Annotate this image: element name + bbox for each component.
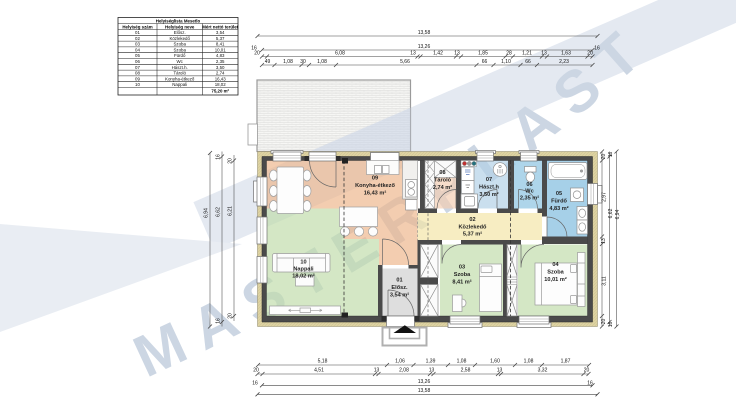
svg-text:2,58: 2,58 (461, 368, 471, 374)
svg-text:05: 05 (556, 191, 562, 197)
svg-text:16: 16 (594, 46, 600, 52)
svg-text:03: 03 (135, 42, 140, 47)
svg-text:10: 10 (135, 82, 140, 87)
svg-text:13: 13 (374, 368, 380, 374)
svg-text:1,87: 1,87 (561, 359, 571, 365)
svg-text:16: 16 (252, 381, 258, 387)
svg-text:13: 13 (601, 238, 607, 244)
svg-text:4,83 m²: 4,83 m² (549, 205, 568, 212)
svg-text:13: 13 (454, 51, 460, 57)
svg-text:2,74: 2,74 (216, 71, 225, 76)
svg-text:Szoba: Szoba (173, 42, 186, 47)
svg-text:16: 16 (608, 152, 614, 158)
svg-text:2,74 m²: 2,74 m² (433, 184, 452, 191)
svg-text:Szoba: Szoba (547, 270, 564, 276)
svg-text:13: 13 (410, 51, 416, 57)
svg-text:1,08: 1,08 (524, 359, 534, 365)
svg-text:Tároló: Tároló (173, 71, 186, 76)
svg-text:09: 09 (372, 176, 378, 182)
svg-text:2,23: 2,23 (559, 59, 569, 65)
svg-text:49: 49 (265, 59, 271, 65)
svg-text:13: 13 (541, 51, 547, 57)
svg-text:10,01 m²: 10,01 m² (544, 276, 567, 283)
svg-text:20: 20 (228, 313, 234, 319)
svg-text:1,85: 1,85 (478, 51, 488, 57)
svg-text:1,39: 1,39 (426, 359, 436, 365)
svg-text:Nappali: Nappali (172, 82, 187, 87)
svg-text:Helyiség neve: Helyiség neve (165, 24, 195, 29)
svg-text:5,37 m²: 5,37 m² (463, 231, 482, 238)
svg-text:20: 20 (254, 51, 260, 57)
svg-text:16: 16 (608, 322, 614, 328)
svg-text:13: 13 (429, 368, 435, 374)
svg-text:1,08: 1,08 (317, 59, 327, 65)
svg-text:5,66: 5,66 (400, 59, 410, 65)
svg-text:01: 01 (396, 278, 402, 284)
svg-text:6,94: 6,94 (204, 208, 210, 218)
svg-text:10,01: 10,01 (215, 47, 227, 52)
svg-text:20: 20 (253, 368, 259, 374)
svg-text:Konyha-étkező: Konyha-étkező (165, 76, 195, 81)
svg-text:30: 30 (300, 59, 306, 65)
svg-text:Tároló: Tároló (434, 178, 452, 184)
svg-text:07: 07 (486, 177, 492, 183)
svg-text:16: 16 (587, 381, 593, 387)
svg-text:8,41: 8,41 (216, 42, 225, 47)
svg-text:Szoba: Szoba (454, 272, 471, 278)
svg-text:04: 04 (552, 262, 559, 268)
svg-text:3,32: 3,32 (538, 368, 548, 374)
svg-text:1,08: 1,08 (283, 59, 293, 65)
svg-text:6,21: 6,21 (228, 206, 234, 216)
svg-text:20: 20 (601, 319, 607, 325)
svg-text:02: 02 (469, 217, 475, 223)
svg-text:02: 02 (135, 36, 140, 41)
svg-text:20: 20 (601, 154, 607, 160)
svg-text:5,37: 5,37 (216, 36, 225, 41)
svg-text:13,26: 13,26 (418, 44, 431, 50)
svg-text:4,51: 4,51 (314, 368, 324, 374)
svg-text:3,54: 3,54 (216, 30, 225, 35)
svg-text:3,54 m²: 3,54 m² (390, 292, 409, 299)
svg-text:20: 20 (228, 158, 234, 164)
svg-text:5,18: 5,18 (318, 359, 328, 365)
svg-text:16: 16 (216, 154, 222, 160)
svg-text:1,60: 1,60 (490, 359, 500, 365)
svg-text:3,50: 3,50 (216, 65, 225, 70)
svg-text:4,83: 4,83 (216, 53, 225, 58)
svg-text:1,63: 1,63 (561, 51, 571, 57)
svg-text:Helyiséglista Mesetlo: Helyiséglista Mesetlo (156, 18, 201, 23)
svg-text:6,08: 6,08 (335, 51, 345, 57)
svg-text:Szoba: Szoba (173, 47, 186, 52)
svg-text:1,21: 1,21 (522, 51, 532, 57)
svg-text:08: 08 (135, 71, 140, 76)
svg-text:04: 04 (135, 47, 140, 52)
svg-text:10: 10 (300, 260, 306, 266)
svg-text:Hászt.h.: Hászt.h. (172, 65, 188, 70)
svg-text:6,62: 6,62 (608, 208, 614, 218)
svg-text:Konyha-étkező: Konyha-étkező (355, 183, 395, 189)
svg-text:3,11: 3,11 (602, 276, 608, 286)
svg-text:13: 13 (497, 368, 503, 374)
svg-text:Mért nettó terület: Mért nettó terület (202, 24, 238, 29)
svg-text:Wc: Wc (177, 59, 184, 64)
svg-text:2,08: 2,08 (399, 368, 409, 374)
svg-text:2,97: 2,97 (602, 192, 608, 202)
svg-text:6,62: 6,62 (216, 207, 222, 217)
svg-text:Wc: Wc (525, 189, 533, 195)
svg-text:Hászt.h: Hászt.h (479, 185, 499, 191)
svg-text:18,02 m²: 18,02 m² (292, 273, 315, 280)
svg-text:Nappali: Nappali (293, 267, 314, 273)
svg-text:06: 06 (135, 59, 140, 64)
svg-text:13,26: 13,26 (418, 379, 431, 385)
svg-text:05: 05 (135, 53, 140, 58)
svg-text:20: 20 (584, 368, 590, 374)
svg-text:1,42: 1,42 (433, 51, 443, 57)
svg-text:Fürdő: Fürdő (174, 53, 186, 58)
svg-text:Helyiség szám: Helyiség szám (122, 24, 152, 29)
svg-text:16,43 m²: 16,43 m² (364, 190, 387, 197)
svg-text:09: 09 (135, 76, 140, 81)
svg-text:Elősz.: Elősz. (174, 30, 186, 35)
svg-text:18,02: 18,02 (215, 82, 227, 87)
svg-text:13,58: 13,58 (418, 30, 431, 36)
svg-text:6,94: 6,94 (615, 209, 621, 219)
svg-text:20: 20 (587, 51, 593, 57)
svg-text:66: 66 (525, 59, 531, 65)
svg-text:1,08: 1,08 (457, 359, 467, 365)
svg-text:Fürdő: Fürdő (551, 199, 567, 205)
svg-text:01: 01 (135, 30, 140, 35)
svg-text:08: 08 (439, 170, 445, 176)
svg-text:1,10: 1,10 (501, 59, 511, 65)
svg-text:07: 07 (135, 65, 140, 70)
svg-text:13,58: 13,58 (418, 388, 431, 394)
svg-text:16: 16 (216, 318, 222, 324)
svg-text:Közlekedő: Közlekedő (169, 36, 190, 41)
svg-text:8,41 m²: 8,41 m² (452, 279, 471, 286)
svg-text:2,35 m²: 2,35 m² (520, 195, 539, 202)
svg-text:03: 03 (459, 265, 465, 271)
svg-text:2,35: 2,35 (216, 59, 225, 64)
svg-text:Elősz.: Elősz. (391, 285, 408, 291)
svg-text:75,20 m²: 75,20 m² (211, 89, 229, 94)
svg-text:3,50 m²: 3,50 m² (479, 191, 498, 198)
svg-text:16,43: 16,43 (215, 76, 227, 81)
svg-text:06: 06 (526, 182, 532, 188)
svg-text:66: 66 (482, 59, 488, 65)
svg-text:Közlekedő: Közlekedő (459, 225, 488, 231)
svg-text:1,06: 1,06 (395, 359, 405, 365)
svg-text:28: 28 (506, 51, 512, 57)
